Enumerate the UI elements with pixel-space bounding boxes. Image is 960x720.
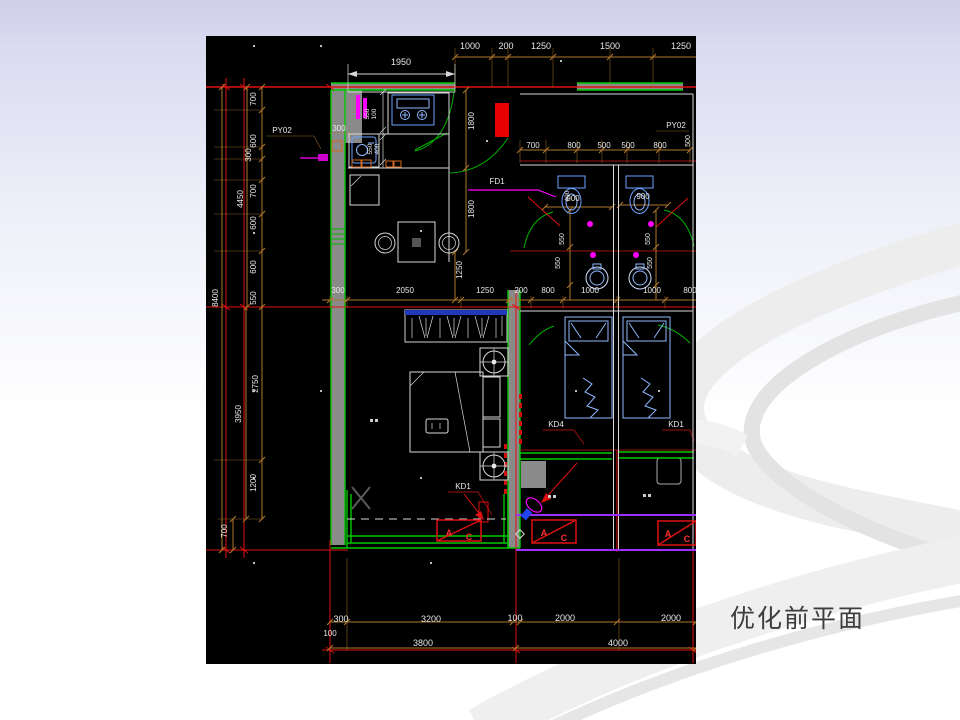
dim-label: 600 [249, 260, 258, 274]
dim-label: 1200 [249, 474, 258, 492]
dim-label: 550 [555, 257, 562, 269]
dim-label: 300 [333, 614, 348, 624]
dim-label: 400 [374, 143, 381, 154]
dim-label: 1250 [455, 261, 464, 279]
ac-letter: C [561, 533, 568, 543]
tag-py02-left: PY02 [272, 126, 292, 135]
dim-label: 1000 [643, 286, 661, 295]
tag-kd1-master: KD1 [455, 482, 471, 491]
dim-label: 4450 [236, 190, 245, 208]
dim-label: 900 [636, 192, 650, 201]
dim-label: 800 [541, 286, 555, 295]
dim-label: 550 [249, 291, 258, 305]
dim-label: 600 [249, 216, 258, 230]
dim-label: 500 [685, 135, 692, 147]
dim-label: 500 [621, 141, 635, 150]
dim-label: 400 [564, 190, 571, 201]
dim-label: 4000 [608, 638, 628, 648]
ac-letter: A [446, 528, 453, 538]
dim-label: 300 [244, 148, 253, 162]
dim-label: 2000 [555, 613, 575, 623]
dim-label: 1500 [600, 41, 620, 51]
dim-label: 700 [526, 141, 540, 150]
dim-label: 2750 [251, 375, 260, 393]
dim-label: 300 [331, 286, 345, 295]
dim-label: 700 [249, 184, 258, 198]
wardrobe-rail [405, 310, 507, 315]
slide-caption: 优化前平面 [730, 599, 865, 635]
dim-label: 550 [647, 257, 654, 269]
dim-label: 3200 [421, 614, 441, 624]
dim-label: 100 [507, 613, 522, 623]
dim-label: 1250 [531, 41, 551, 51]
door-leaf-red [495, 103, 509, 137]
dim-label: 1250 [671, 41, 691, 51]
dim-label: 200 [514, 286, 528, 295]
tag-kd4: KD4 [548, 420, 564, 429]
tag-fd1: FD1 [489, 177, 505, 186]
dim-label: 550 [559, 233, 566, 245]
dim-label: 1950 [391, 57, 411, 67]
dim-label: 1000 [581, 286, 599, 295]
dim-label: 700 [249, 92, 258, 106]
dim-label: 800 [653, 141, 667, 150]
dim-label: 3950 [234, 405, 243, 423]
ac-letter: C [684, 534, 691, 544]
dim-label: 1250 [476, 286, 494, 295]
dim-label: 800 [683, 286, 697, 295]
dim-label: 2050 [396, 286, 414, 295]
dim-label: 550 [645, 233, 652, 245]
dim-label: 500 [597, 141, 611, 150]
dim-label: 800 [567, 141, 581, 150]
ac-letter: A [665, 529, 672, 539]
dim-label: 1800 [467, 112, 476, 130]
dim-label: 200 [498, 41, 513, 51]
dim-label: 3800 [413, 638, 433, 648]
tag-py02-right: PY02 [666, 121, 686, 130]
dim-label: 550 [367, 143, 374, 154]
dim-label: 100 [371, 108, 378, 119]
dim-label: 550 [364, 108, 371, 119]
ac-letter: C [466, 532, 473, 542]
dim-label: 700 [220, 524, 229, 538]
dim-label: 300 [332, 124, 346, 133]
dim-label: 2000 [661, 613, 681, 623]
tag-kd1-right: KD1 [668, 420, 684, 429]
dim-label: 600 [249, 134, 258, 148]
ac-letter: A [541, 528, 548, 538]
dim-label: 1800 [467, 200, 476, 218]
dim-label: 1000 [460, 41, 480, 51]
dim-label: 8400 [211, 289, 220, 307]
dim-label: 100 [323, 629, 337, 638]
